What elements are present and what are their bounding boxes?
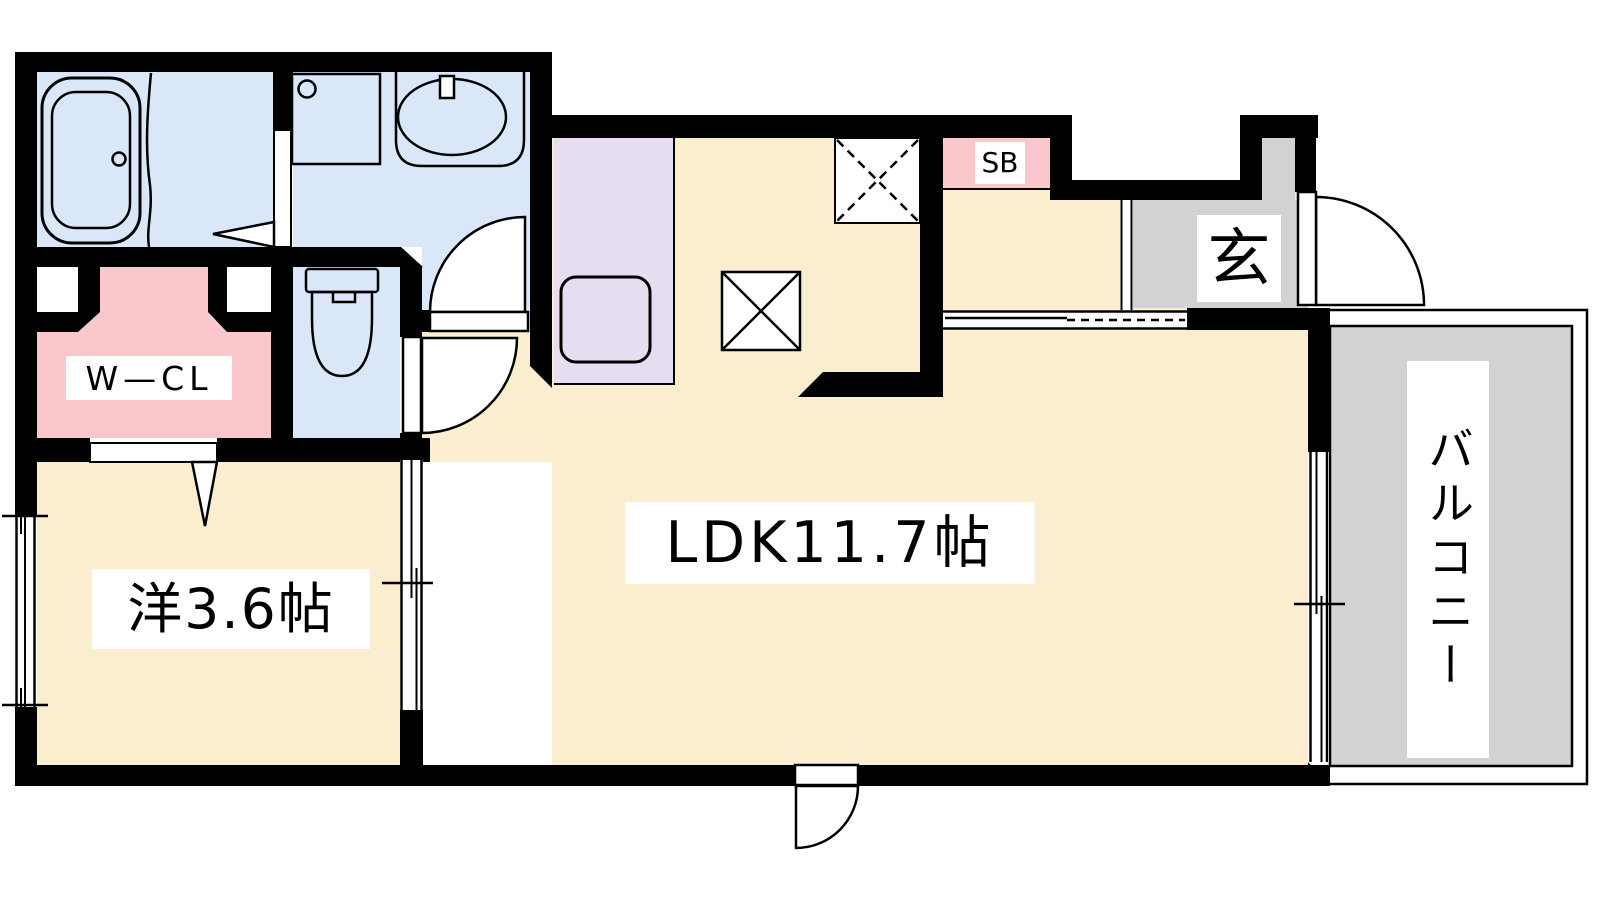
closet-label: W—CL: [66, 356, 232, 400]
entrance-step: [1120, 200, 1133, 310]
shoebox-label: SB: [975, 142, 1025, 184]
western-window: [2, 500, 48, 722]
wash-basin: [396, 72, 524, 166]
floor-plan: W—CL 洋3.6帖 LDK11.7帖 玄 SB バルコニー: [0, 0, 1600, 900]
balcony-label: バルコニー: [1407, 361, 1489, 758]
toilet-fixture: [306, 269, 378, 376]
bottom-door: [795, 765, 858, 848]
bath-partition: [147, 73, 151, 247]
western-ldk-sliding-door: [382, 460, 433, 710]
bathroom-door: [213, 130, 291, 247]
kitchen-sink: [561, 277, 650, 362]
bathtub: [42, 78, 140, 243]
washing-machine-pan: [292, 74, 380, 164]
entrance-door: [1298, 192, 1424, 305]
washroom-door: [430, 217, 528, 331]
toilet-door: [403, 337, 517, 433]
ldk-label: LDK11.7帖: [625, 502, 1035, 584]
entrance-sliding-door: [943, 310, 1187, 330]
storage-space: [722, 272, 800, 350]
fixtures-layer: [0, 0, 1600, 900]
refrigerator-space: [835, 138, 920, 223]
closet-door: [90, 443, 217, 526]
western-room-label: 洋3.6帖: [92, 569, 370, 649]
entrance-label: 玄: [1197, 215, 1281, 302]
